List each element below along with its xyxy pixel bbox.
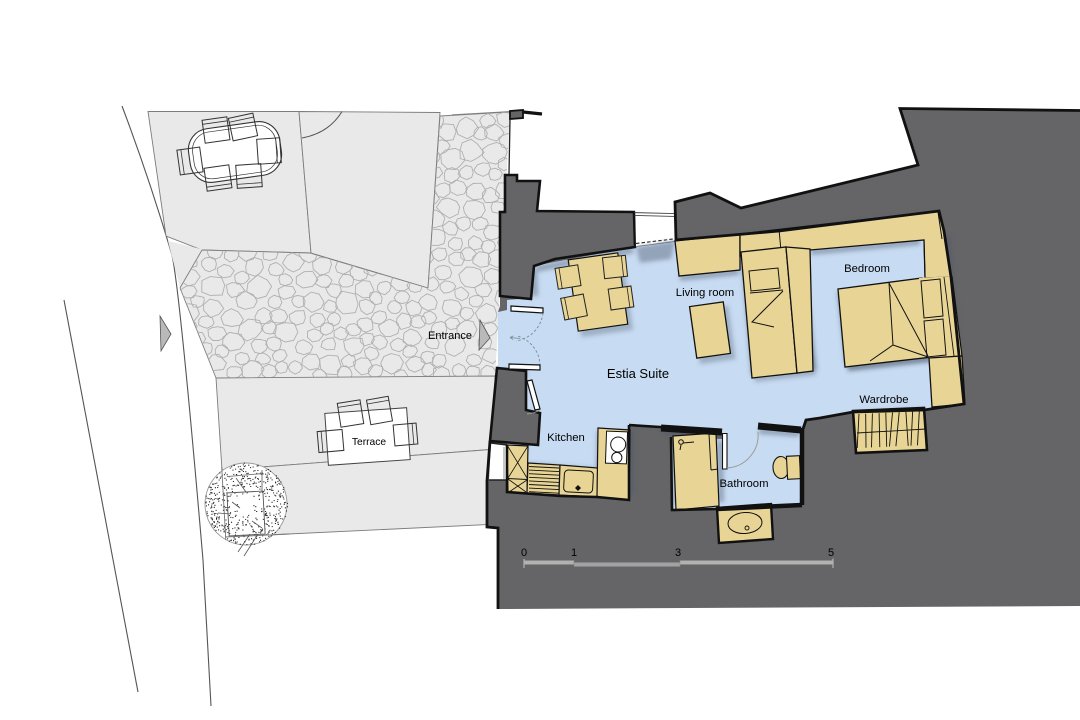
svg-text:Entrance: Entrance bbox=[428, 330, 472, 342]
svg-text:5: 5 bbox=[828, 547, 834, 559]
svg-text:Bedroom: Bedroom bbox=[844, 263, 890, 275]
svg-text:Estia Suite: Estia Suite bbox=[607, 366, 669, 381]
svg-text:Living room: Living room bbox=[676, 287, 734, 299]
svg-text:Kitchen: Kitchen bbox=[547, 432, 585, 444]
svg-text:Terrace: Terrace bbox=[352, 437, 387, 448]
svg-text:Wardrobe: Wardrobe bbox=[859, 394, 908, 406]
svg-text:3: 3 bbox=[675, 547, 681, 559]
svg-text:Bathroom: Bathroom bbox=[720, 478, 769, 490]
svg-text:0: 0 bbox=[521, 547, 527, 559]
svg-text:1: 1 bbox=[571, 547, 577, 559]
